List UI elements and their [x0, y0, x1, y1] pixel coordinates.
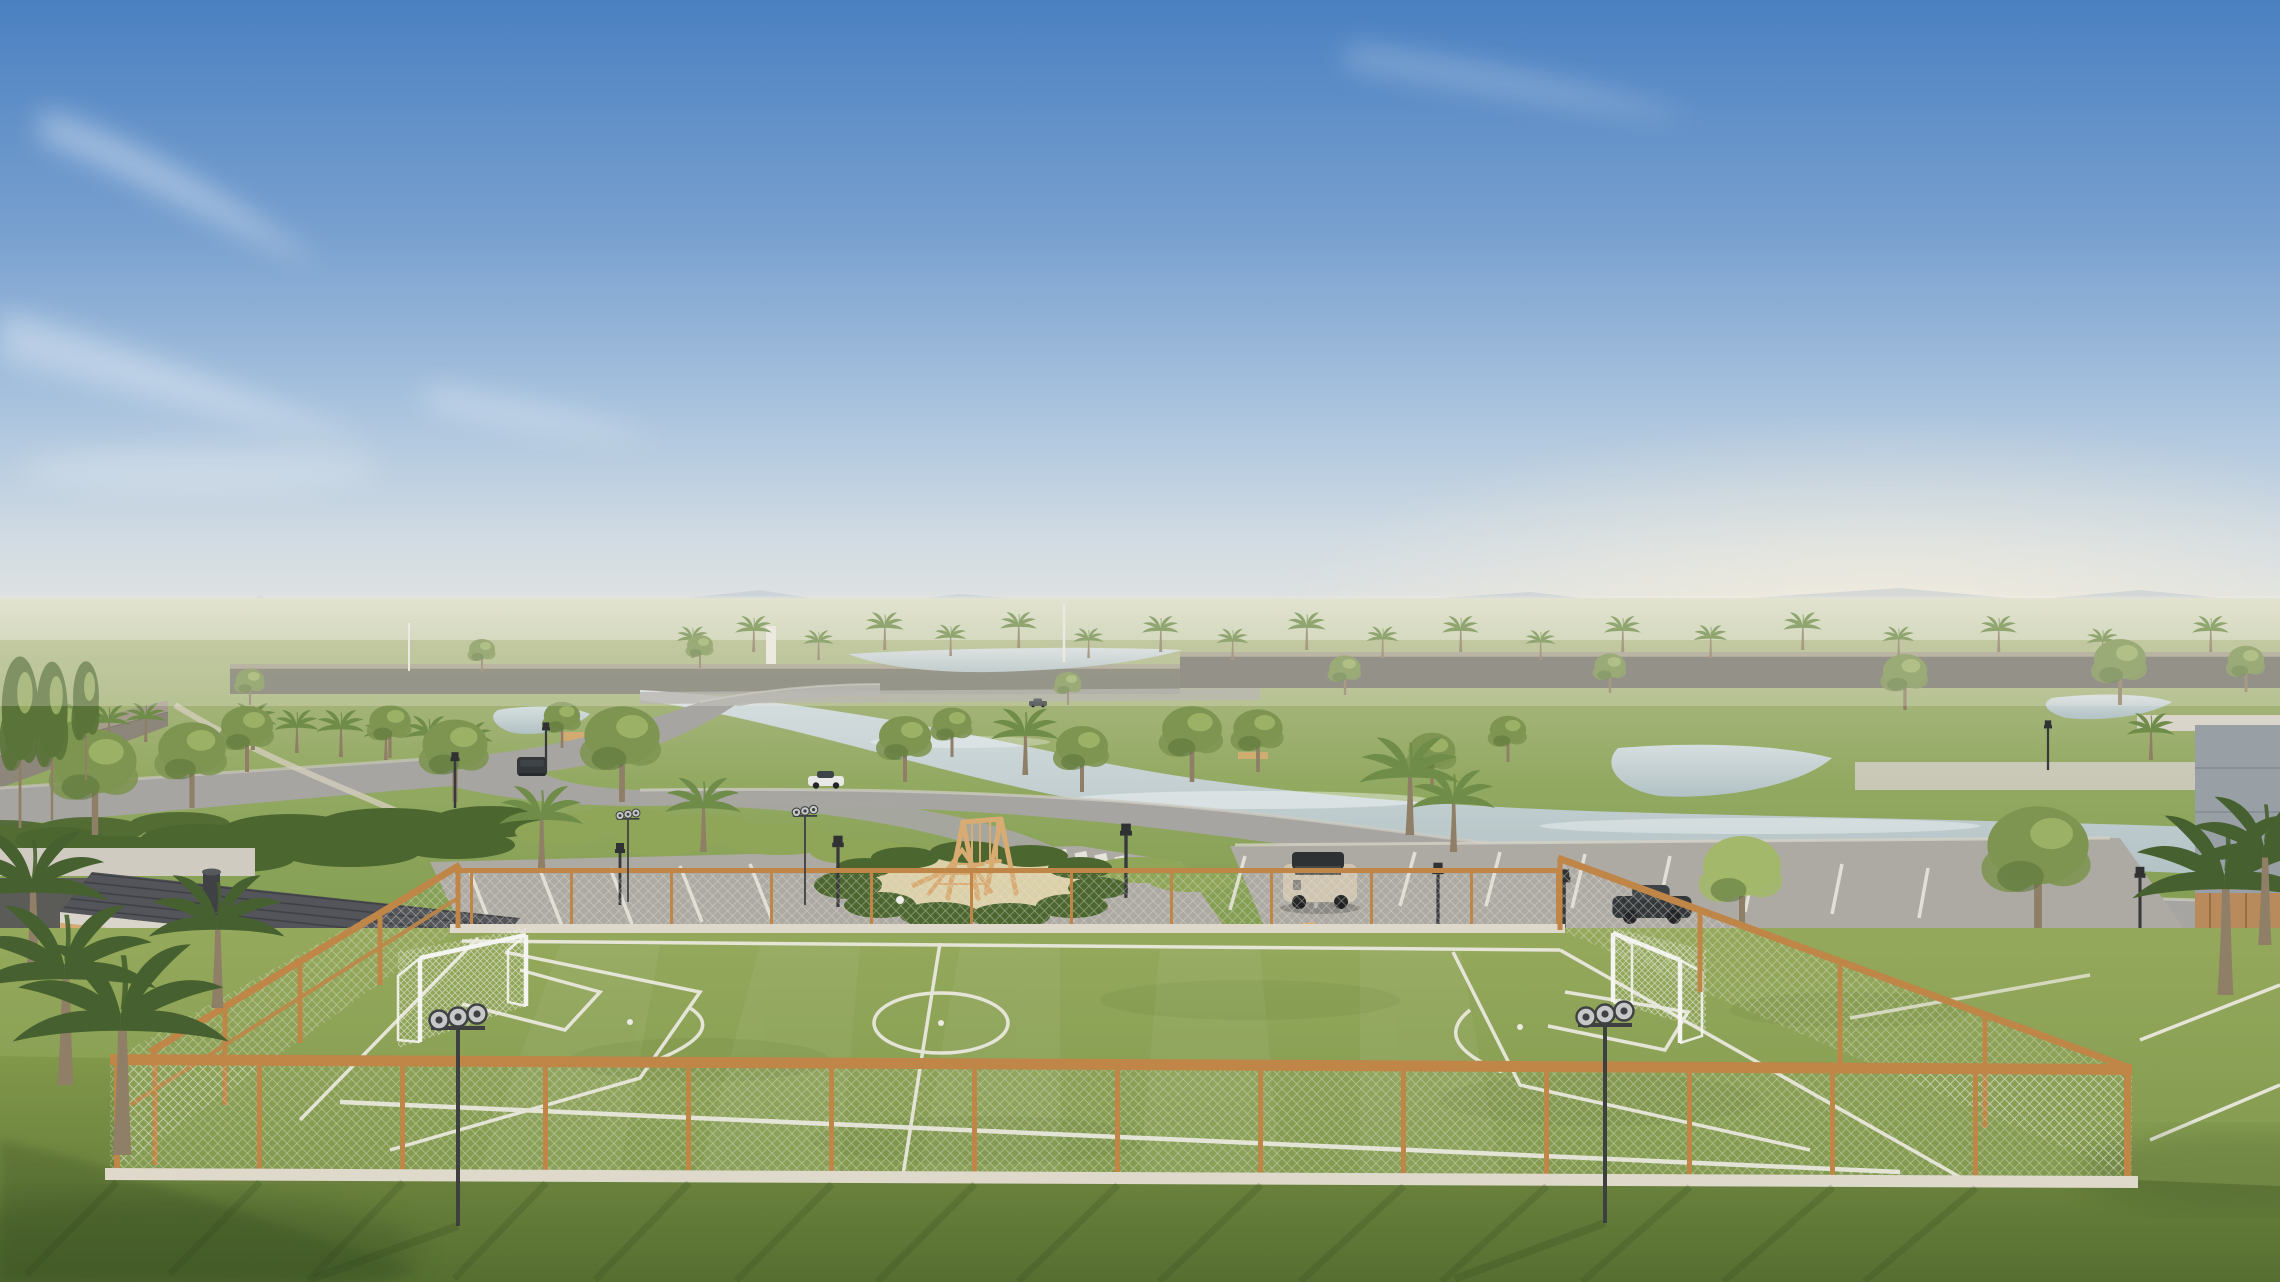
- retaining-wall-right: [1855, 762, 2195, 790]
- car-dark-suv: [517, 757, 547, 776]
- fence-curb-far: [450, 924, 1565, 933]
- horizon-haze: [0, 596, 2280, 706]
- fence-mesh-far: [455, 874, 1560, 928]
- fence-rail-far: [455, 868, 1560, 873]
- fence-mesh-near: [110, 1062, 2132, 1178]
- render-viewport: [0, 0, 2280, 1282]
- community-render: [0, 0, 2280, 1282]
- lake-dock-small: [1238, 752, 1268, 759]
